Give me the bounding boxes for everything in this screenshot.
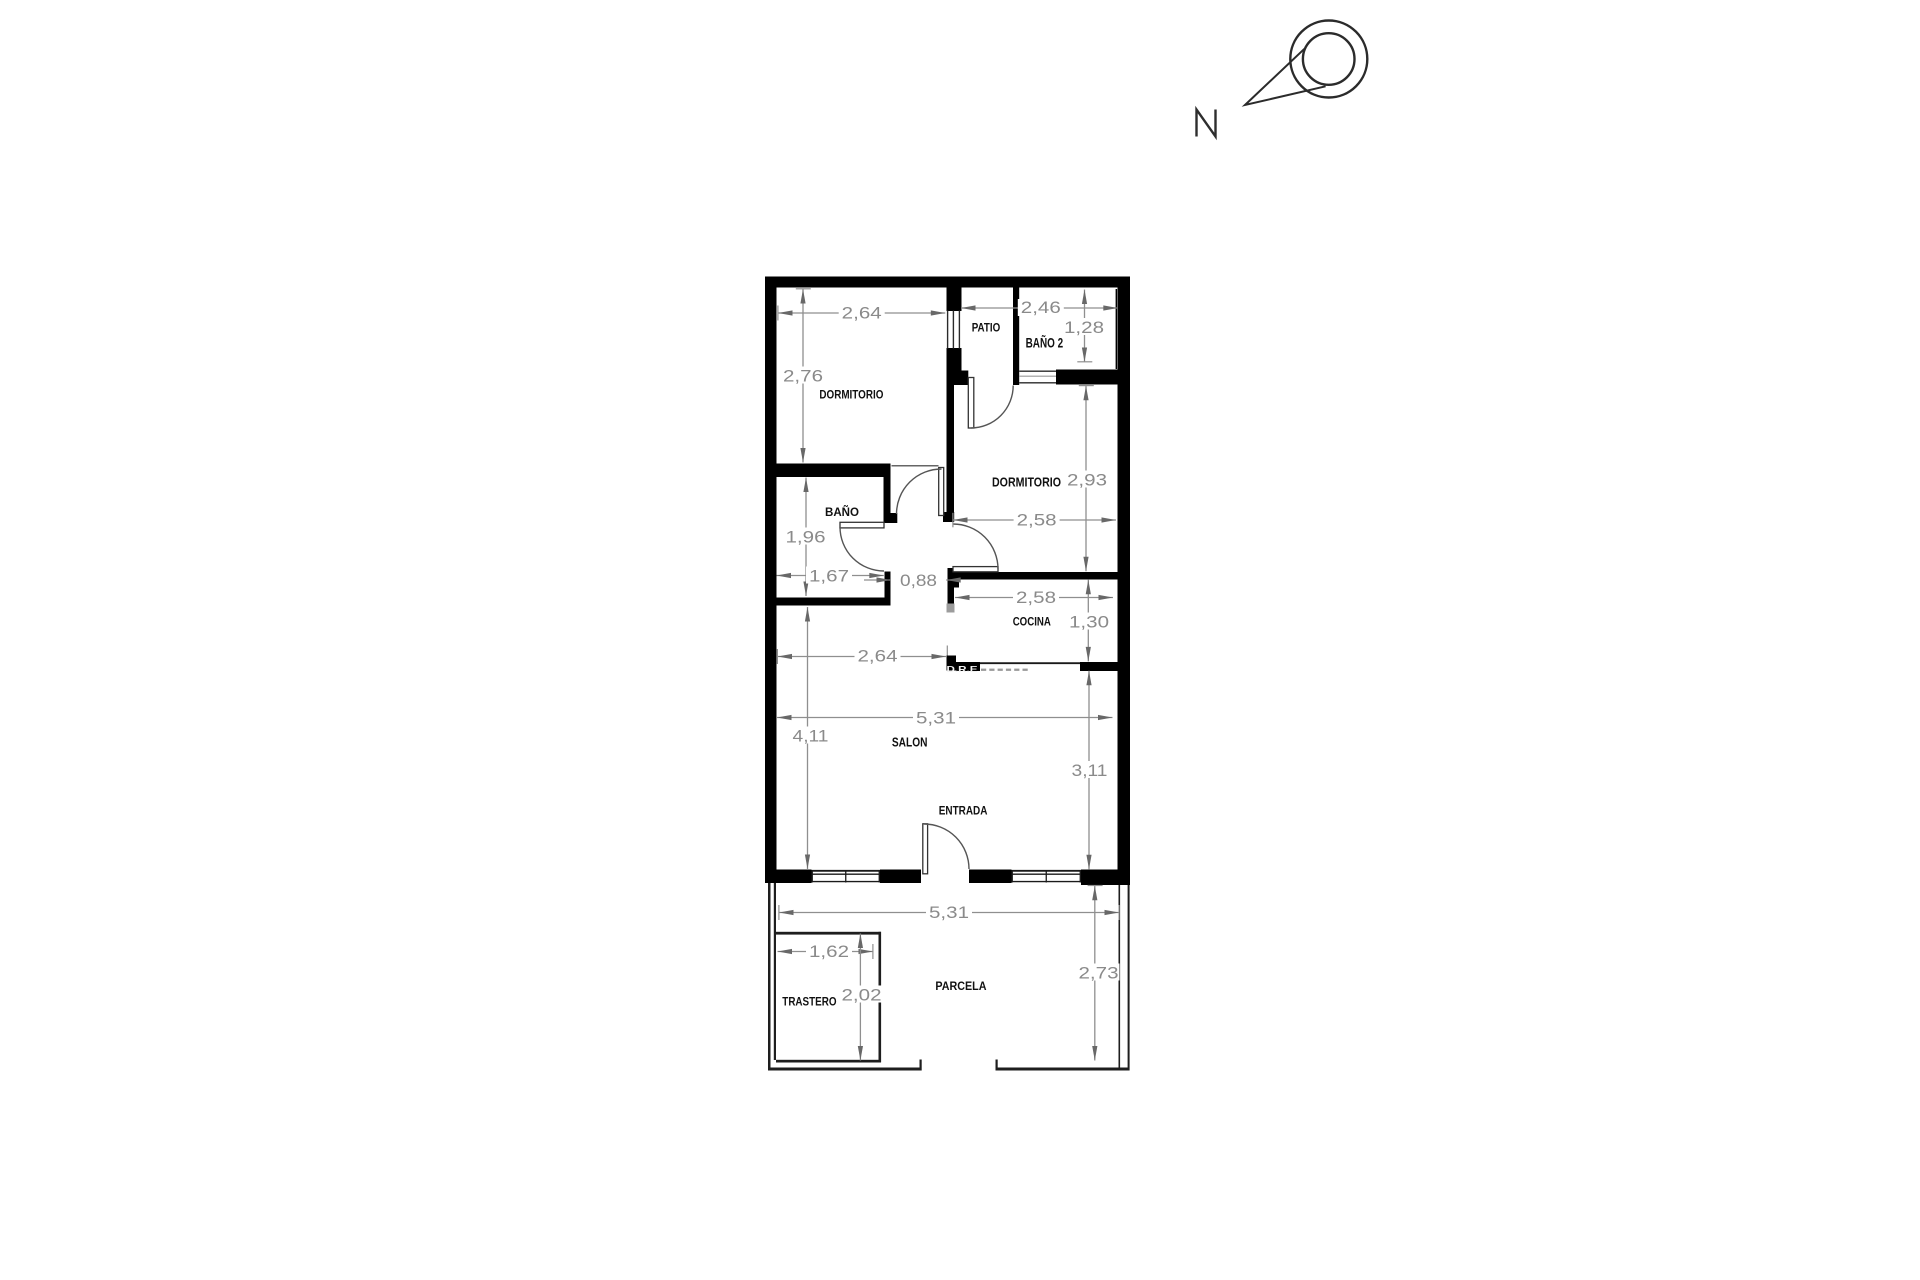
svg-text:TRASTERO: TRASTERO xyxy=(782,997,836,1009)
svg-text:1,62: 1,62 xyxy=(809,942,849,961)
svg-text:4,11: 4,11 xyxy=(793,727,829,746)
svg-text:2,93: 2,93 xyxy=(1067,471,1107,490)
svg-text:2,58: 2,58 xyxy=(1016,588,1056,607)
svg-text:2,76: 2,76 xyxy=(783,367,823,386)
svg-text:PATIO: PATIO xyxy=(972,321,1001,335)
svg-text:0,88: 0,88 xyxy=(900,571,937,590)
svg-text:1,28: 1,28 xyxy=(1064,318,1104,337)
svg-text:ENTRADA: ENTRADA xyxy=(939,804,988,818)
svg-text:2,64: 2,64 xyxy=(842,303,882,322)
svg-text:DORMITORIO: DORMITORIO xyxy=(992,475,1061,490)
svg-text:2,02: 2,02 xyxy=(842,986,882,1005)
svg-text:2,73: 2,73 xyxy=(1079,964,1119,983)
svg-text:BAÑO: BAÑO xyxy=(825,506,859,519)
svg-text:2,46: 2,46 xyxy=(1021,298,1061,317)
svg-text:SALON: SALON xyxy=(892,736,928,750)
svg-text:1,30: 1,30 xyxy=(1069,613,1109,632)
svg-text:3,11: 3,11 xyxy=(1072,761,1108,780)
svg-text:5,31: 5,31 xyxy=(916,708,956,727)
svg-text:DORMITORIO: DORMITORIO xyxy=(819,387,883,401)
svg-text:1,96: 1,96 xyxy=(786,528,826,547)
svg-text:2,58: 2,58 xyxy=(1017,511,1057,530)
svg-text:1,67: 1,67 xyxy=(809,567,849,586)
svg-text:2,64: 2,64 xyxy=(858,647,898,666)
svg-text:PARCELA: PARCELA xyxy=(935,981,986,993)
svg-text:COCINA: COCINA xyxy=(1013,617,1051,629)
svg-text:D.R.E: D.R.E xyxy=(947,664,978,674)
svg-text:BAÑO 2: BAÑO 2 xyxy=(1026,335,1064,350)
svg-text:5,31: 5,31 xyxy=(929,903,969,922)
